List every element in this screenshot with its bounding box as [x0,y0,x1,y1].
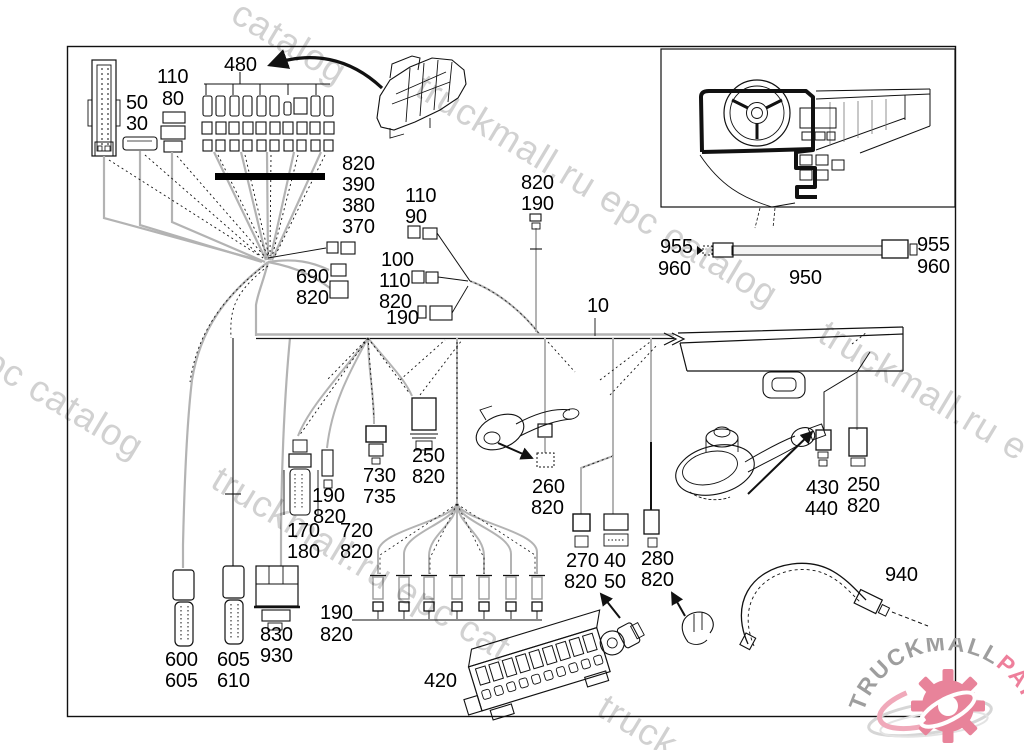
part-number-label: 820 [564,572,597,592]
highlighted-harness-bar [215,173,325,180]
harness-highlight-path [701,91,813,152]
part-number-label: 480 [224,55,257,75]
part-number-label: 820 [340,542,373,562]
part-number-label: 80 [162,89,184,109]
part-number-label: 430 [806,478,839,498]
part-number-label: 110 [157,67,188,87]
part-number-label: 820 [847,496,880,516]
arrow-stalk-to-connector [498,443,532,458]
part-number-label: 955 [660,237,693,257]
diagram-border [68,47,956,717]
part-number-label: 190 [386,308,419,328]
stalk-switch-illustration [471,406,580,457]
part-number-label: 250 [847,475,880,495]
part-number-label: 820 [342,154,375,174]
part-number-label: 380 [342,196,375,216]
part-number-label: 955 [917,235,950,255]
part-number-label: 170 [287,521,320,541]
part-number-label: 280 [641,549,674,569]
part-number-label: 820 [641,570,674,590]
right-panel-run [664,327,903,466]
connectors-270-40-280 [573,510,659,547]
part-number-label: 250 [412,446,445,466]
part-number-label: 370 [342,217,375,237]
part-number-label: 950 [789,268,822,288]
part-number-label: 610 [217,671,250,691]
part-number-label: 940 [885,565,918,585]
part-number-label: 930 [260,646,293,666]
multi-pin-connector [88,60,120,156]
relay-connector-groups [202,72,334,151]
part-number-label: 50 [126,93,148,113]
part-number-label: 820 [320,625,353,645]
part-number-label: 390 [342,175,375,195]
part-number-label: 110 [379,271,410,291]
part-number-label: 720 [340,521,373,541]
bottom-connector-fan [352,502,545,620]
part-number-label: 735 [363,487,396,507]
part-number-label: 190 [320,603,353,623]
part-number-label: 820 [521,173,554,193]
ignition-switch-illustration [596,617,646,659]
arrow-clamp-to-label [672,593,685,616]
part-number-label: 820 [296,288,329,308]
arrow-480-to-engine [270,58,382,88]
truckmall-parts-logo: TRUCKMALLPARTS [840,638,1024,750]
connector-50-30 [123,137,157,150]
clamp-illustration [682,612,713,644]
part-number-label: 100 [381,250,414,270]
part-number-label: 600 [165,650,198,670]
part-number-label: 960 [658,259,691,279]
part-number-label: 40 [604,551,626,571]
part-number-label: 90 [405,207,427,227]
parts-diagram-page: catalogtruckmall.ru epc catalogl epc cat… [0,0,1024,750]
part-number-label: 180 [287,542,320,562]
part-number-label: 420 [424,671,457,691]
part-number-label: 820 [412,467,445,487]
horn-illustration [670,424,825,503]
part-number-label: 260 [532,477,565,497]
fuse-box-illustration [450,610,621,726]
part-number-label: 690 [296,267,329,287]
part-number-label: 190 [312,486,345,506]
part-number-label: 30 [126,114,148,134]
part-number-label: 270 [566,551,599,571]
part-number-label: 605 [217,650,250,670]
part-number-label: 605 [165,671,198,691]
part-number-label: 830 [260,625,293,645]
dashboard-illustration [700,80,930,228]
part-number-label: 440 [805,499,838,519]
connector-110-80 [161,112,185,152]
part-number-label: 110 [405,186,436,206]
logo-gear-icon [911,669,985,743]
part-number-label: 190 [521,194,554,214]
arrow-ignition-to-label [601,594,620,618]
part-number-label: 820 [531,498,564,518]
part-number-label: 10 [587,296,609,316]
engine-illustration [377,56,466,138]
cable-950 [697,240,917,258]
part-number-label: 730 [363,466,396,486]
part-number-label: 50 [604,572,626,592]
arrow-horn-to-connector [748,432,812,494]
part-number-label: 960 [917,257,950,277]
